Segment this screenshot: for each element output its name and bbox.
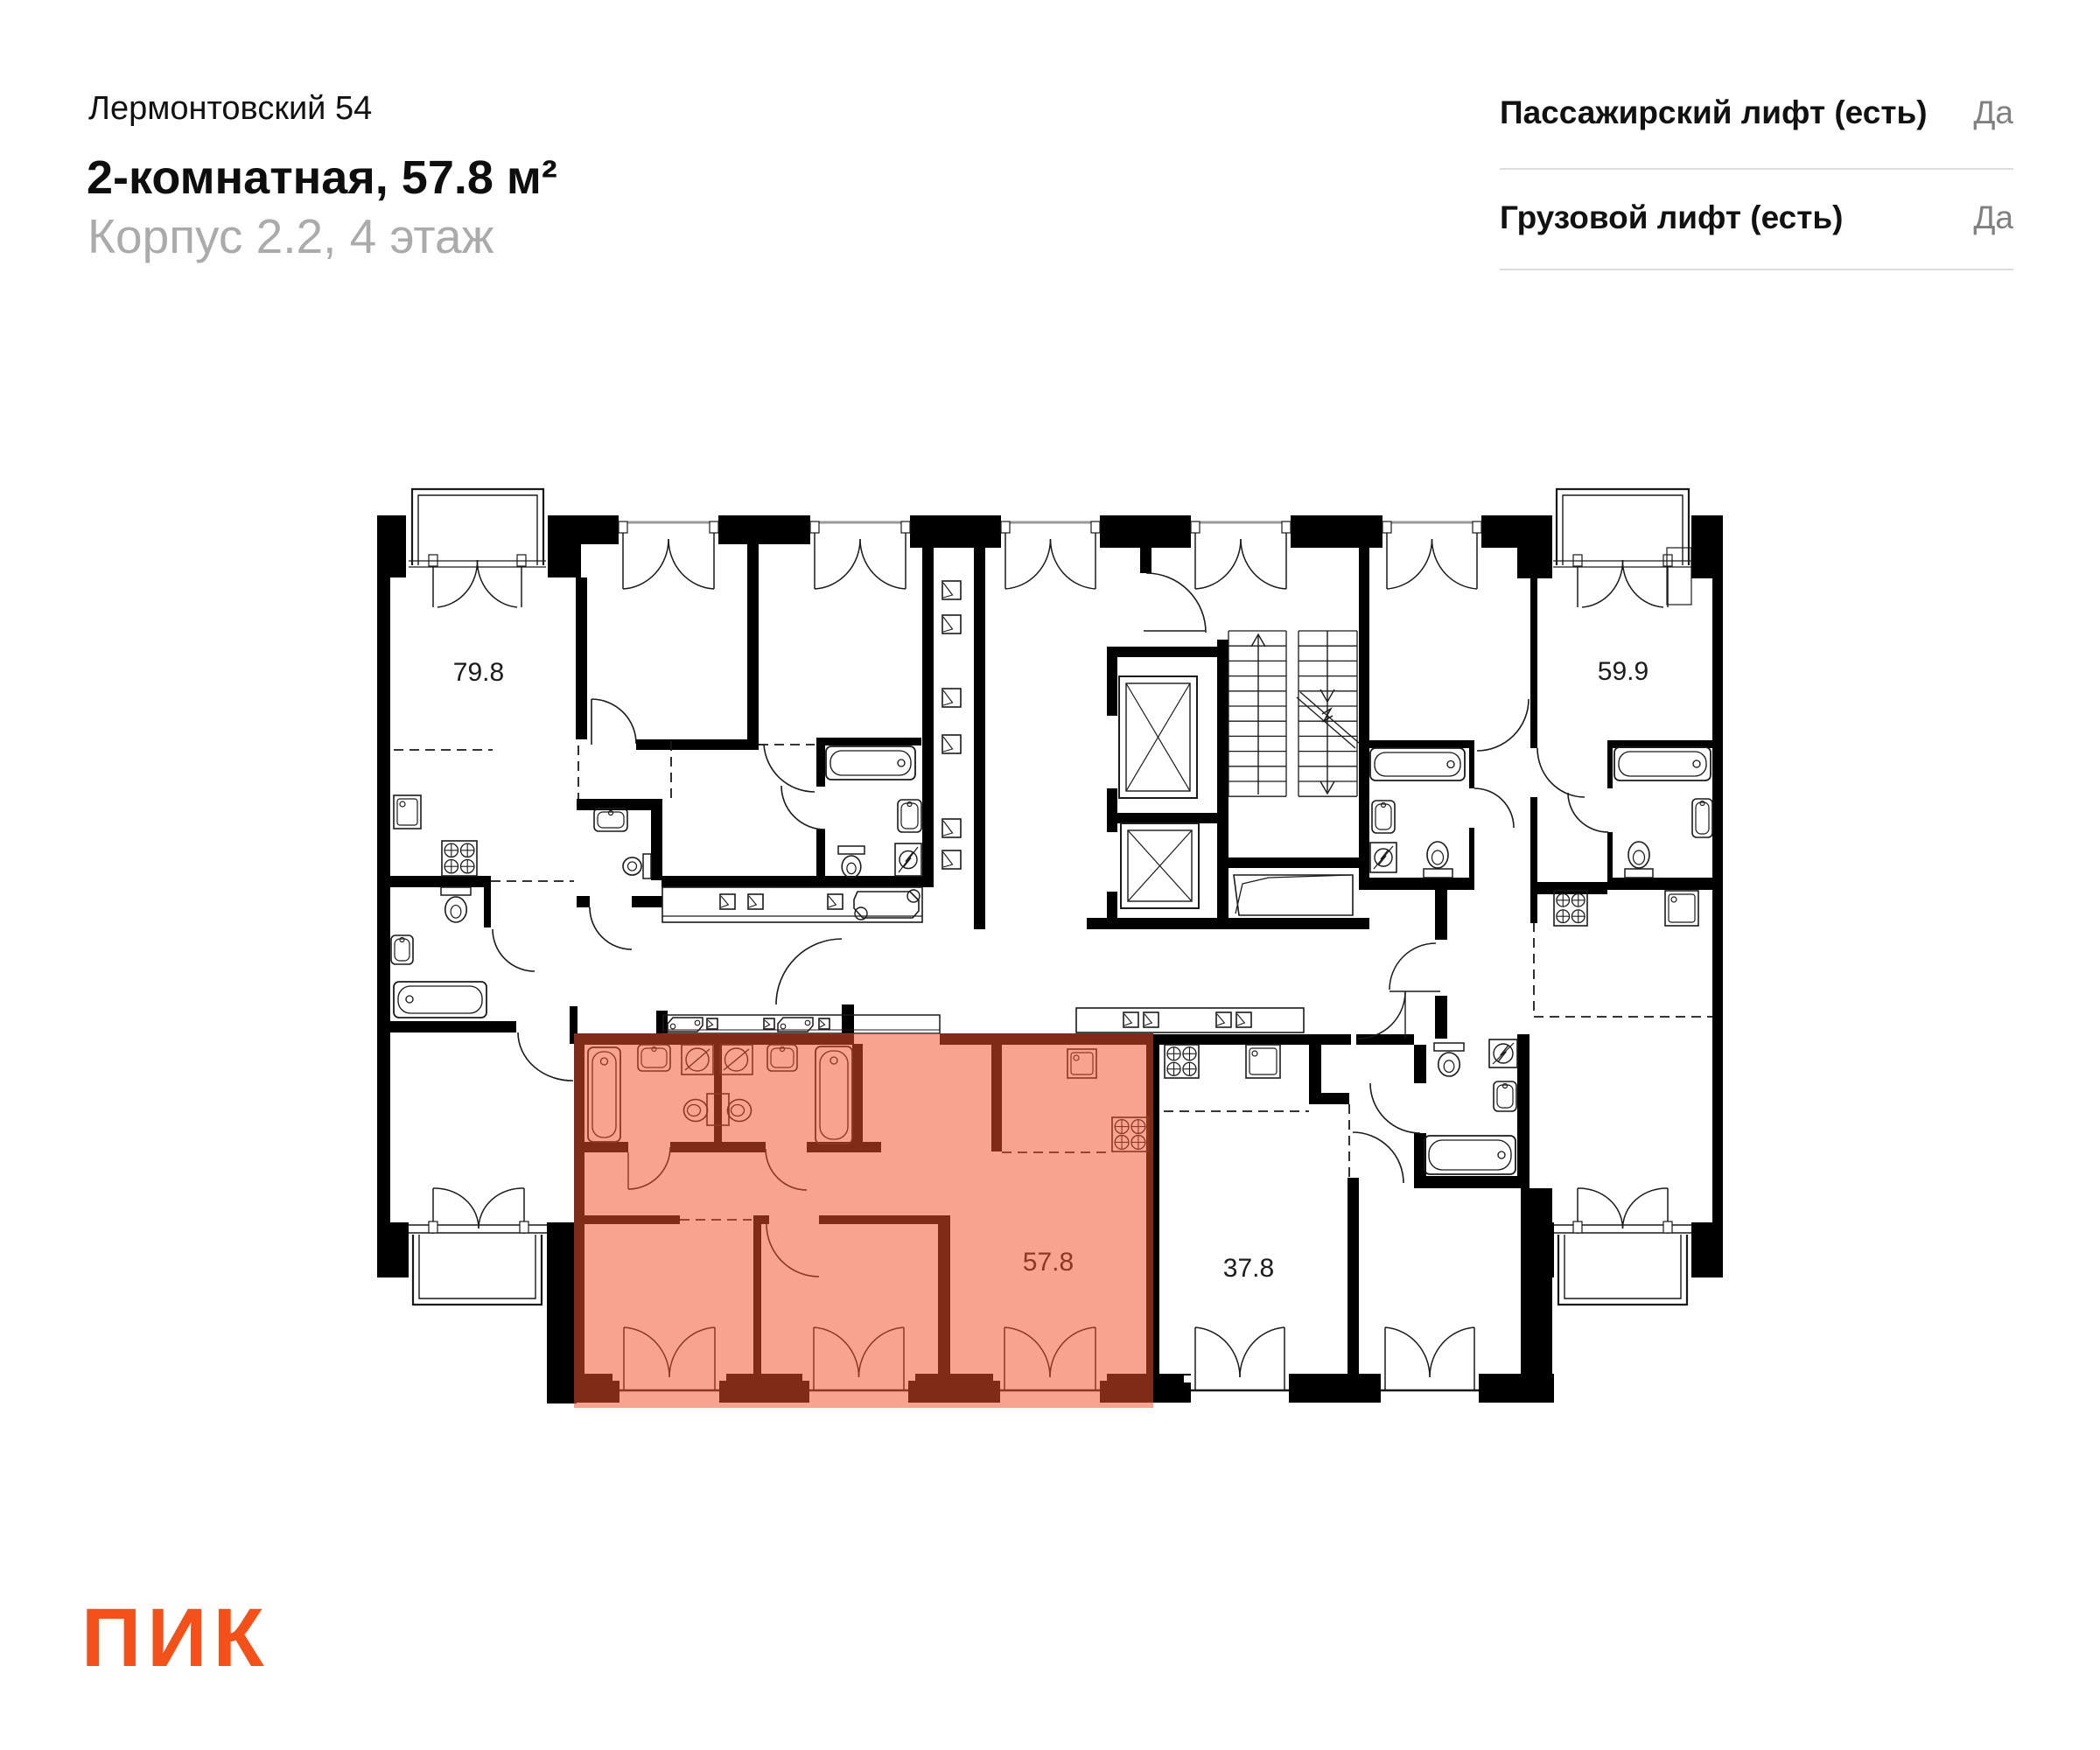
svg-text:37.8: 37.8 <box>1223 1254 1274 1283</box>
svg-text:79.8: 79.8 <box>453 658 504 687</box>
svg-text:59.9: 59.9 <box>1598 657 1648 686</box>
